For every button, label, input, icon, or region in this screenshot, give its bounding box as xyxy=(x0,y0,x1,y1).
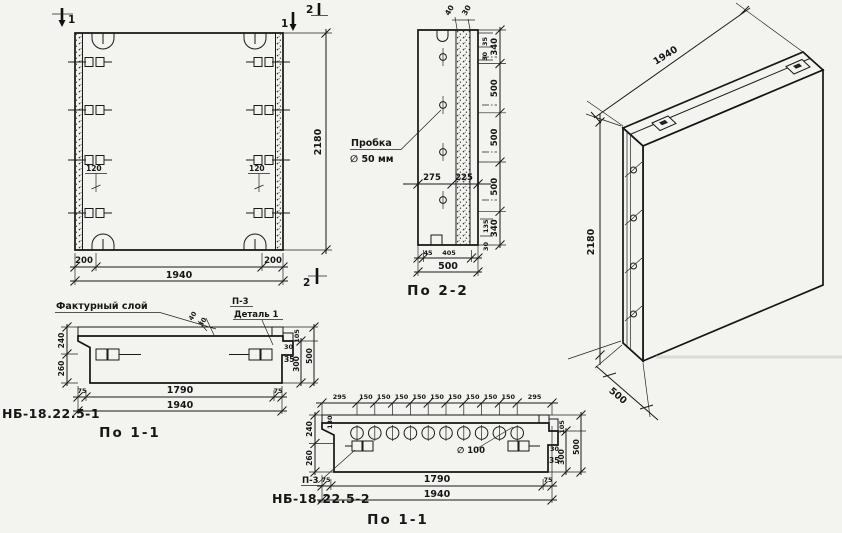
dim-500-r: 500 xyxy=(305,348,314,364)
plug-note: Пробка ∅ 50 мм xyxy=(350,110,441,165)
dim-340-b: 340 xyxy=(490,219,500,237)
dim-1940-total: 1940 xyxy=(167,400,194,411)
dim-30b-side: 30 xyxy=(482,241,490,251)
detail-note-p3-b: П-3 xyxy=(302,476,319,486)
dim-75-lb: 75 xyxy=(321,476,331,484)
s11a-left-dims: 240 260 xyxy=(57,323,78,388)
detail-note-detal1: Деталь 1 xyxy=(234,310,279,320)
dim-75-r: 75 xyxy=(273,387,283,395)
dim-275: 275 xyxy=(423,173,441,183)
dim-2180: 2180 xyxy=(313,128,324,155)
dim-120-left: 120 xyxy=(86,164,102,173)
s11b-top-dims: 295 150 150 150 150 150 150 150 150 150 … xyxy=(316,393,558,415)
s11b-right-dims: 30 35 105 300 500 xyxy=(548,411,586,477)
s11b-anchors xyxy=(345,441,540,451)
dim-150-1: 150 xyxy=(359,393,373,401)
hole-note: ∅ 100 xyxy=(457,446,485,456)
s11b-left-dims: 240 260 130 xyxy=(305,411,334,477)
dim-300-r: 300 xyxy=(292,356,301,372)
blueprint-page: 120 120 2180 200 200 1940 1 1 xyxy=(0,0,842,533)
facing-layer-label: Фактурный слой xyxy=(56,301,148,312)
iso-view: 1940 2180 500 xyxy=(568,3,842,420)
section-2-2: Пробка ∅ 50 мм 40 30 35 30 340 500 500 5… xyxy=(350,3,506,299)
cut-2-top-label: 2 xyxy=(306,4,313,16)
dim-200-left: 200 xyxy=(75,256,93,266)
dim-30: 30 xyxy=(460,3,473,17)
drawing-canvas: 120 120 2180 200 200 1940 1 1 xyxy=(0,0,842,533)
dim-1940-total-b: 1940 xyxy=(424,489,451,500)
dim-500-rb: 500 xyxy=(572,439,581,455)
iso-height-dim: 2180 xyxy=(568,114,621,365)
dim-40: 40 xyxy=(443,3,456,17)
section-2-2-title: По 2-2 xyxy=(407,283,469,299)
dim-30-side: 30 xyxy=(481,51,489,61)
cut-1-right-label: 1 xyxy=(281,18,288,30)
dim-1940: 1940 xyxy=(166,270,193,281)
front-bottom-dims: 200 200 1940 xyxy=(70,253,288,286)
dim-150-2: 150 xyxy=(377,393,391,401)
front-view: 120 120 2180 200 200 1940 1 1 xyxy=(52,3,332,289)
dim-150-6: 150 xyxy=(448,393,462,401)
panel-mark-2: НБ-18.22.5-2 xyxy=(272,491,370,506)
dim-135-side: 135 xyxy=(482,219,490,233)
dim-105-rb: 105 xyxy=(558,420,566,434)
dim-500-c: 500 xyxy=(490,178,500,196)
dim-295-l: 295 xyxy=(333,393,347,401)
cut-2-bottom-label: 2 xyxy=(303,277,310,289)
plug-note-line1: Пробка xyxy=(351,138,392,149)
dim-225: 225 xyxy=(455,173,473,183)
dim-75-l: 75 xyxy=(77,387,87,395)
dim-layer-40: 40 xyxy=(187,310,199,322)
dim-45: 45 xyxy=(423,249,433,257)
dim-150-4: 150 xyxy=(413,393,427,401)
dim-500-total: 500 xyxy=(438,261,458,272)
dim-405: 405 xyxy=(442,249,456,257)
s22-bottom-dims: 45 405 500 135 30 xyxy=(414,219,494,277)
front-height-dim: 2180 xyxy=(283,29,332,255)
dim-340-a: 340 xyxy=(490,38,500,56)
anchor-dim-right: 120 xyxy=(248,164,270,192)
dim-260-b: 260 xyxy=(305,450,314,466)
dim-240-a: 240 xyxy=(57,333,66,349)
dim-35-side: 35 xyxy=(481,36,489,46)
s11a-bottom-dims: 75 1790 75 1940 xyxy=(73,385,287,416)
dim-150-7: 150 xyxy=(466,393,480,401)
dim-500-b: 500 xyxy=(490,128,500,146)
cut-marks: 1 1 2 2 xyxy=(52,3,328,289)
dim-130: 130 xyxy=(326,415,334,429)
cut-1-left-label: 1 xyxy=(68,14,75,26)
dim-75-rb: 75 xyxy=(543,476,553,484)
section-1-1-a-title: По 1-1 xyxy=(99,425,161,441)
anchor-dim-left: 120 xyxy=(85,164,107,192)
section-1-1-b-title: По 1-1 xyxy=(367,512,429,528)
dim-150-9: 150 xyxy=(502,393,516,401)
dim-200-right: 200 xyxy=(264,256,282,266)
iso-dim-500: 500 xyxy=(606,385,629,406)
s11a-layer-dims: 40 30 xyxy=(187,310,214,335)
dim-150-8: 150 xyxy=(484,393,498,401)
embedded-anchors xyxy=(68,58,290,218)
dim-120-right: 120 xyxy=(249,164,265,173)
dim-1790: 1790 xyxy=(167,385,194,396)
dim-150-3: 150 xyxy=(395,393,409,401)
dim-150-5: 150 xyxy=(430,393,444,401)
iso-dim-2180: 2180 xyxy=(586,228,597,255)
s11b-holes xyxy=(351,425,524,441)
dim-240-b: 240 xyxy=(305,421,314,437)
lifting-loop-marks xyxy=(92,33,266,250)
dim-295-r: 295 xyxy=(528,393,542,401)
dim-105-r: 105 xyxy=(293,329,301,343)
dim-1790-b: 1790 xyxy=(424,474,451,485)
iso-dim-1940: 1940 xyxy=(652,44,681,68)
s11a-right-dims: 30 35 105 300 500 xyxy=(282,323,319,388)
dim-500-a: 500 xyxy=(490,79,500,97)
dim-30-r: 30 xyxy=(284,343,294,351)
section-1-1-a: Фактурный слой П-3 Деталь 1 40 30 240 26… xyxy=(2,297,319,441)
section-1-1-b: 295 150 150 150 150 150 150 150 150 150 … xyxy=(272,393,586,528)
dim-300-rb: 300 xyxy=(557,449,566,465)
detail-note-p3: П-3 xyxy=(232,297,249,307)
s11a-anchors xyxy=(96,349,272,360)
plug-note-line2: ∅ 50 мм xyxy=(350,154,394,165)
panel-mark-1: НБ-18.22.5-1 xyxy=(2,406,100,421)
dim-260-a: 260 xyxy=(57,361,66,377)
